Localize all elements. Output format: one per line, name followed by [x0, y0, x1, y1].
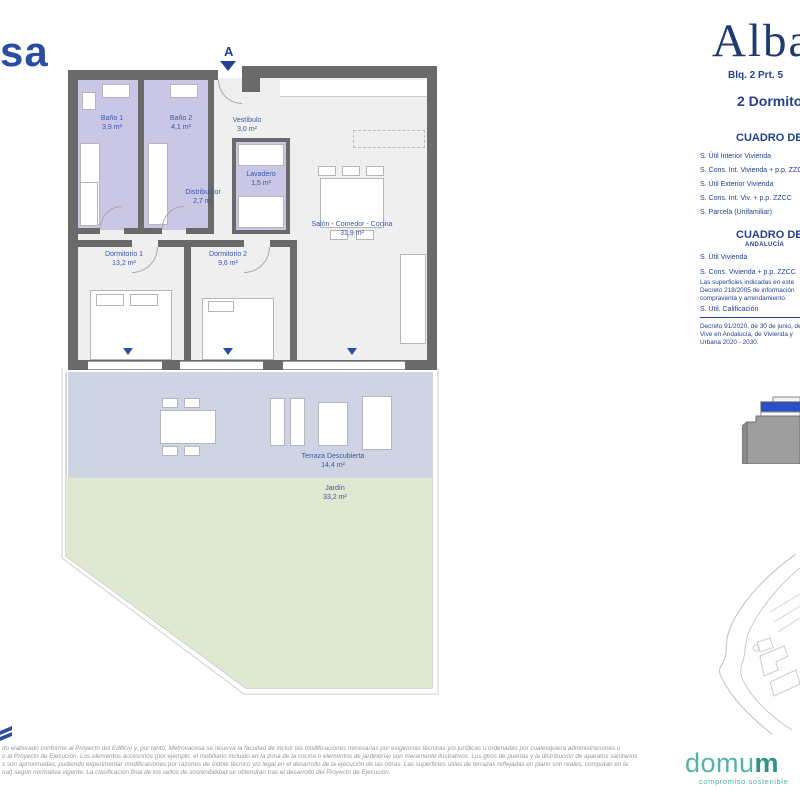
room-name: Distribuidor [185, 188, 220, 197]
wall-bath-south-a [78, 228, 100, 234]
wall-bedrooms-north-a [78, 240, 132, 247]
dining-chair-2 [342, 166, 360, 176]
room-name: Baño 1 [101, 114, 123, 123]
table2-note1-line: Las superficies indicadas en este [700, 279, 794, 287]
access-triangle-bedroom2 [223, 348, 233, 355]
terrace-lounger-2 [290, 398, 305, 446]
domum-logo: domum [685, 748, 779, 779]
room-area: 13,2 m² [105, 259, 143, 268]
room-area: 9,6 m² [209, 259, 247, 268]
wall-top-step [242, 66, 260, 92]
wall-bedroom2-living [290, 247, 297, 360]
room-label-hall: Vestíbulo 3,0 m² [233, 116, 262, 134]
sofa [400, 254, 426, 344]
table1-row: S. Parcela (Unifamiliar) [700, 209, 772, 216]
access-triangle-living [347, 348, 357, 355]
calificacion-underline [700, 317, 800, 318]
orientation-arrow-icon [220, 61, 236, 71]
kitchen-counter [280, 80, 427, 97]
terrace-chair-4 [184, 446, 200, 456]
terrace-chair-1 [162, 398, 178, 408]
bath2-sink [170, 84, 198, 98]
room-area: 3,0 m² [233, 125, 262, 134]
window-living [283, 361, 405, 370]
hall-closet [238, 144, 284, 166]
wall-bath-divider [138, 80, 144, 228]
terrace-sofa [362, 396, 392, 450]
washer [238, 196, 284, 228]
room-name: Salón - Comedor - Cocina [312, 220, 393, 229]
room-label-bedroom2: Dormitorio 2 9,6 m² [209, 250, 247, 268]
wall-bedrooms-north-b [158, 240, 244, 247]
terrace-table [160, 410, 216, 444]
surface-table2-subtitle: ANDALUCÍA [745, 242, 784, 248]
table1-row: S. Útil Interior Vivienda [700, 153, 771, 160]
terrace-lounger-1 [270, 398, 285, 446]
table2-note1-line: compraventa y arrendamiento. [700, 295, 787, 303]
table2-note2-line: Vive en Andalucía, de Vivienda y [700, 331, 793, 339]
window-bedroom1 [88, 361, 162, 370]
wall-top-right [242, 66, 437, 78]
table1-row: S. Cons. Int. Vivienda + p.p. ZZCC [700, 167, 800, 174]
bedroom1-pillow-left [96, 294, 124, 306]
domum-logo-light: domu [685, 748, 755, 778]
window-bedroom2 [180, 361, 263, 370]
terrace-chair-2 [184, 398, 200, 408]
metrovacesa-mark-icon [0, 726, 16, 742]
unit-reference: Blq. 2 Prt. 5 [728, 70, 783, 81]
wall-top-left [68, 70, 218, 80]
room-area: 2,7 m² [185, 197, 220, 206]
room-name: Jardín [323, 484, 347, 493]
disclaimer-line: do elaborado conforme al Proyecto del Ed… [2, 745, 620, 752]
bedroom2-pillow [208, 301, 234, 312]
floorplan-page: { "branding": { "metrovacesa_partial": "… [0, 0, 800, 800]
orientation-marker-label: A [224, 44, 233, 59]
room-area: 3,9 m² [101, 123, 123, 132]
wall-right [427, 66, 437, 370]
disclaimer-line: s son aproximadas, pudiendo experimentar… [2, 761, 628, 768]
room-label-living: Salón - Comedor - Cocina 31,9 m² [312, 220, 393, 238]
unit-type: 2 Dormitorios [737, 93, 800, 109]
bedroom1-pillow-right [130, 294, 158, 306]
surface-table2-title: CUADRO DE SUPERFICIES [736, 229, 800, 241]
table1-row: S. Útil Exterior Vivienda [700, 181, 773, 188]
room-label-laundry: Lavadero 1,5 m² [246, 170, 275, 188]
dining-chair-1 [318, 166, 336, 176]
room-area: 1,5 m² [246, 179, 275, 188]
domum-tagline: compromiso sostenible [699, 777, 788, 786]
room-label-terrace: Terraza Descubierta 14,4 m² [302, 452, 365, 470]
dashed-cabinet-outline [353, 130, 425, 148]
wall-bedrooms-north-c [270, 240, 297, 247]
disclaimer-line: nal) según normativa vigente. La clasifi… [2, 769, 391, 776]
wall-bedroom-divider [184, 247, 191, 360]
wall-bath-south-b [124, 228, 162, 234]
domum-logo-bold: m [755, 748, 780, 778]
table2-note2-line: Urbana 2020 - 2030. [700, 339, 759, 347]
room-name: Lavadero [246, 170, 275, 179]
project-logo: Alba [712, 14, 800, 68]
table2-row: S. Cons. Vivienda + p.p. ZZCC [700, 269, 796, 276]
access-triangle-bedroom1 [123, 348, 133, 355]
building-elevation-key [742, 396, 800, 464]
wall-left [68, 70, 78, 370]
table2-note2-line: Decreto 91/2020, de 30 de junio, del [700, 323, 800, 331]
terrace-side-table [318, 402, 348, 446]
site-plan-key [700, 552, 800, 748]
room-name: Dormitorio 1 [105, 250, 143, 259]
metrovacesa-logo-partial: sa [0, 28, 49, 76]
room-name: Baño 2 [170, 114, 192, 123]
bath1-sink [102, 84, 130, 98]
terrace-chair-3 [162, 446, 178, 456]
surface-table1-title: CUADRO DE SUPERFICIES [736, 132, 800, 144]
room-area: 31,9 m² [312, 229, 393, 238]
room-label-corridor: Distribuidor 2,7 m² [185, 188, 220, 206]
room-label-bath2: Baño 2 4,1 m² [170, 114, 192, 132]
bath1-toilet [82, 92, 96, 110]
room-name: Vestíbulo [233, 116, 262, 125]
room-area: 33,2 m² [323, 493, 347, 502]
bedroom1-wardrobe [80, 182, 98, 226]
wall-bath-south-c [186, 228, 214, 234]
room-label-bath1: Baño 1 3,9 m² [101, 114, 123, 132]
room-name: Dormitorio 2 [209, 250, 247, 259]
table2-row: S. Útil Vivienda [700, 254, 747, 261]
table2-note1-line: Decreto 218/2005 de información [700, 287, 795, 295]
dining-chair-3 [366, 166, 384, 176]
table1-row: S. Cons. Int. Viv. + p.p. ZZCC [700, 195, 792, 202]
bath2-tub [148, 143, 168, 225]
room-name: Terraza Descubierta [302, 452, 365, 461]
calificacion-label: S. Útil. Calificación [700, 306, 758, 313]
room-area: 14,4 m² [302, 461, 365, 470]
disclaimer-line: o al Proyecto de Ejecución. Los elemento… [2, 753, 637, 760]
room-area: 4,1 m² [170, 123, 192, 132]
room-label-garden: Jardín 33,2 m² [323, 484, 347, 502]
room-label-bedroom1: Dormitorio 1 13,2 m² [105, 250, 143, 268]
